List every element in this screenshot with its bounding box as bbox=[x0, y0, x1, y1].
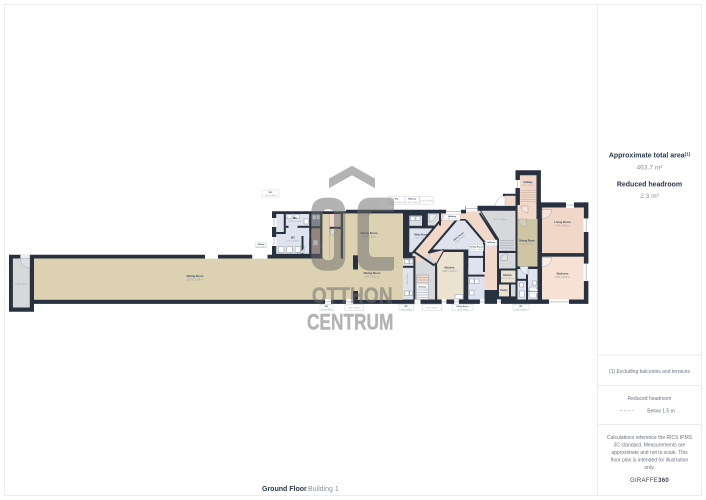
svg-text:Building 1: Building 1 bbox=[308, 486, 339, 493]
svg-text:Pantry: Pantry bbox=[500, 289, 508, 292]
svg-text:WC: WC bbox=[269, 192, 273, 194]
svg-text:5.41 x 2.59 m: 5.41 x 2.59 m bbox=[520, 244, 533, 246]
svg-text:Below 1.5 m: Below 1.5 m bbox=[647, 409, 675, 415]
svg-text:2.60 x 1.16 m: 2.60 x 1.16 m bbox=[288, 221, 301, 223]
svg-text:1.16 x 0.80 m: 1.16 x 0.80 m bbox=[400, 309, 412, 311]
svg-text:32.78 x 2.06 m: 32.78 x 2.06 m bbox=[187, 278, 203, 281]
svg-text:Hallway: Hallway bbox=[524, 181, 534, 184]
svg-text:Ground Floor: Ground Floor bbox=[262, 486, 307, 493]
svg-text:Kitchen: Kitchen bbox=[503, 274, 512, 277]
svg-text:Bathroom: Bathroom bbox=[529, 290, 539, 293]
svg-text:4.73 x 2.92 m: 4.73 x 2.92 m bbox=[286, 241, 299, 243]
svg-text:2.05 x 0.69 m: 2.05 x 0.69 m bbox=[407, 273, 409, 285]
svg-text:2.05 x 0.60 m: 2.05 x 0.60 m bbox=[426, 308, 438, 310]
svg-text:0.79 x 1.80 m: 0.79 x 1.80 m bbox=[515, 309, 527, 311]
svg-text:4.86 x 4.20 m: 4.86 x 4.20 m bbox=[555, 276, 570, 279]
svg-text:CENTRUM: CENTRUM bbox=[307, 310, 394, 335]
svg-text:3C standard. Measurements are: 3C standard. Measurements are bbox=[614, 443, 686, 449]
svg-text:OTTHON: OTTHON bbox=[312, 283, 393, 308]
svg-text:2.3 m²: 2.3 m² bbox=[640, 193, 659, 200]
svg-text:12.6 x 1.48 m: 12.6 x 1.48 m bbox=[485, 245, 497, 247]
svg-text:Calculations reference the RIC: Calculations reference the RICS IPMS bbox=[607, 435, 693, 441]
svg-text:3.03 x 1.11 m: 3.03 x 1.11 m bbox=[256, 246, 267, 248]
svg-text:Reduced headroom: Reduced headroom bbox=[617, 182, 682, 189]
svg-text:2.41 x 2.01 m: 2.41 x 2.01 m bbox=[522, 185, 535, 187]
svg-text:WC: WC bbox=[404, 306, 408, 308]
svg-text:1.06 x 6.47 m: 1.06 x 6.47 m bbox=[15, 284, 28, 286]
svg-text:WC: WC bbox=[519, 306, 523, 308]
svg-text:Reduced headroom: Reduced headroom bbox=[628, 396, 672, 402]
svg-text:Utility Room: Utility Room bbox=[456, 305, 468, 308]
svg-text:2.03 x 2.87 m: 2.03 x 2.87 m bbox=[501, 278, 514, 280]
svg-text:4.95 x 4.04 m: 4.95 x 4.04 m bbox=[442, 270, 457, 273]
svg-text:Dining Room: Dining Room bbox=[519, 240, 535, 243]
svg-text:approximate and not to scale.: approximate and not to scale. This bbox=[611, 450, 688, 456]
svg-text:Approximate total area(1): Approximate total area(1) bbox=[609, 152, 691, 160]
svg-text:1.78 x 1.26 m: 1.78 x 1.26 m bbox=[457, 309, 469, 311]
svg-text:WC: WC bbox=[293, 217, 297, 220]
svg-text:1.78 x 1.56 m: 1.78 x 1.56 m bbox=[471, 249, 483, 251]
svg-text:Hallway: Hallway bbox=[418, 287, 427, 289]
svg-text:Utility Room: Utility Room bbox=[471, 245, 483, 248]
svg-text:WC: WC bbox=[395, 199, 399, 201]
svg-text:4.36 x 3.22 m: 4.36 x 3.22 m bbox=[365, 275, 380, 278]
svg-text:4.88 x 1.07 m: 4.88 x 1.07 m bbox=[446, 219, 458, 221]
svg-text:GIRAFFE360: GIRAFFE360 bbox=[630, 478, 669, 484]
svg-text:Hallway: Hallway bbox=[487, 242, 496, 244]
svg-text:1.93 x 1.10 m: 1.93 x 1.10 m bbox=[406, 202, 418, 204]
svg-text:only.: only. bbox=[644, 465, 654, 471]
svg-text:1.41 x 0.86 m: 1.41 x 0.86 m bbox=[264, 195, 276, 197]
svg-text:Utility Room: Utility Room bbox=[414, 234, 428, 237]
svg-text:Hallway: Hallway bbox=[408, 199, 417, 201]
svg-text:4.05 x 4.06 m: 4.05 x 4.06 m bbox=[555, 224, 570, 227]
svg-text:WC: WC bbox=[291, 237, 295, 240]
svg-text:1.93 x 0.60 m: 1.93 x 0.60 m bbox=[420, 201, 432, 203]
svg-text:5.41 x 2.09 m: 5.41 x 2.09 m bbox=[493, 219, 506, 221]
svg-text:463.7 m²: 463.7 m² bbox=[636, 165, 663, 172]
svg-text:3.85 x 1.86 m: 3.85 x 1.86 m bbox=[415, 237, 428, 239]
svg-text:(1) Excluding balconies and te: (1) Excluding balconies and terraces bbox=[609, 369, 690, 375]
svg-text:floor plan is intended for ill: floor plan is intended for illustration bbox=[611, 458, 688, 464]
